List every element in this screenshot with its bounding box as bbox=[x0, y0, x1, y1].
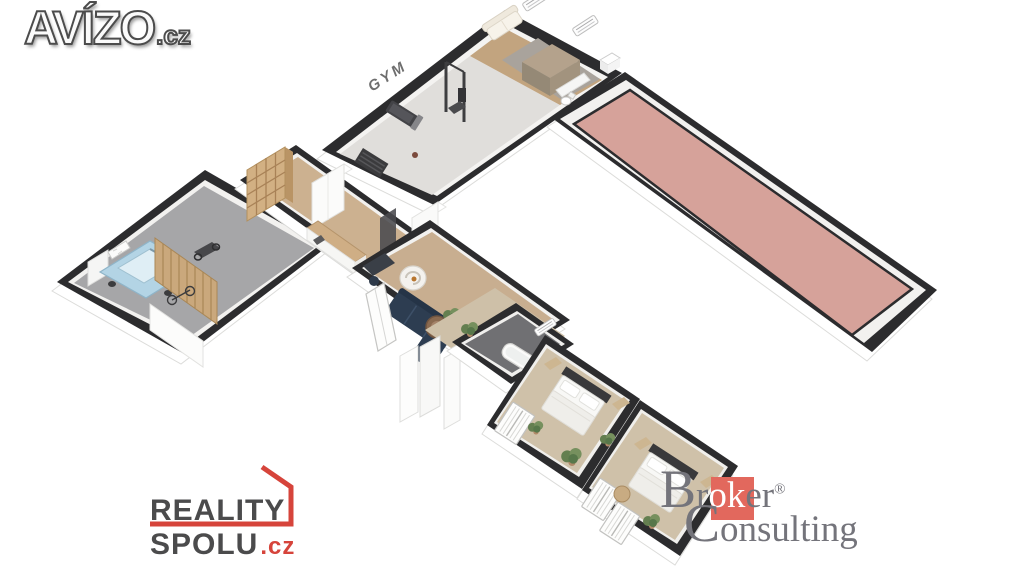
avizo-watermark: AVÍZO.cz bbox=[24, 4, 191, 51]
consulting-rest: onsulting bbox=[720, 509, 858, 550]
window-marker bbox=[572, 15, 599, 37]
window-marker bbox=[522, 0, 549, 12]
spolu-tld: .cz bbox=[260, 533, 295, 560]
broker-consulting-logo: Broker® Consulting bbox=[650, 460, 980, 576]
terrace-strip bbox=[547, 72, 937, 361]
spolu-text: SPOLU bbox=[150, 528, 258, 561]
terrace-floor bbox=[574, 90, 912, 335]
consulting-cap-c: C bbox=[684, 493, 720, 553]
reality-text: REALITY bbox=[150, 494, 285, 528]
avizo-tld: .cz bbox=[156, 20, 191, 50]
ottoman bbox=[614, 486, 630, 502]
spolu-line: SPOLU.cz bbox=[150, 528, 295, 562]
avizo-brand: AVÍZO bbox=[24, 1, 154, 54]
consulting-wordmark: Consulting bbox=[684, 488, 858, 558]
fireplace-sculpture bbox=[400, 266, 426, 290]
screenshot-canvas: GYM bbox=[0, 0, 1024, 576]
reality-spolu-logo: REALITY SPOLU.cz bbox=[148, 468, 408, 572]
kettlebell bbox=[412, 152, 418, 158]
